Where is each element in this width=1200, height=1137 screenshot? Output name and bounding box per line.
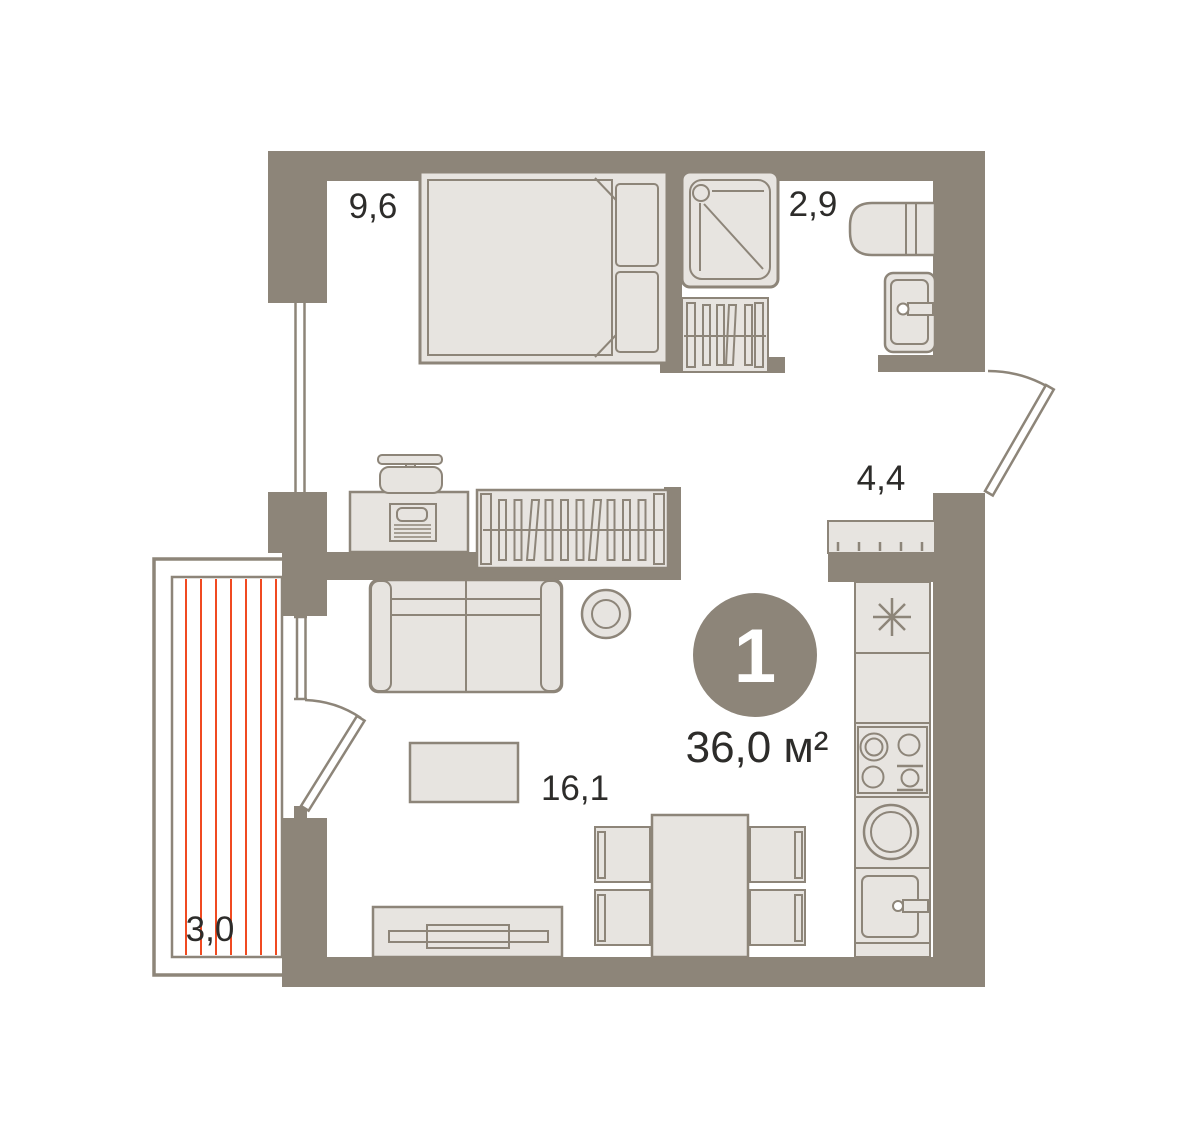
coffee-table <box>410 743 518 802</box>
kitchen-end-panel <box>855 943 930 957</box>
desk-chair-seat <box>380 467 442 493</box>
wall-left-middle <box>268 492 327 553</box>
balcony-area-label: 3,0 <box>186 910 235 949</box>
sink-faucet-bar <box>908 303 933 315</box>
hallway-area-label: 4,4 <box>857 459 906 498</box>
hallway-furniture <box>828 521 935 553</box>
shower <box>682 172 778 287</box>
tv-screen <box>389 931 548 942</box>
balcony-door-window <box>294 616 307 700</box>
wardrobe <box>477 490 668 568</box>
wall-right-upper <box>933 151 985 370</box>
balcony-door-swing-arc <box>305 700 361 718</box>
unit-badge: 1 36,0 м² <box>686 593 829 772</box>
dining-chair-top-left <box>595 827 650 882</box>
sofa-armrest-left <box>371 581 391 691</box>
living-room-area-label: 16,1 <box>541 769 609 808</box>
bathroom-area-label: 2,9 <box>789 185 838 224</box>
bed-mattress <box>428 180 612 355</box>
entrance-door <box>985 371 1054 496</box>
toilet <box>850 203 935 255</box>
side-table-outer <box>582 590 630 638</box>
kitchen <box>855 582 930 957</box>
bed-pillow-top <box>616 184 658 266</box>
wall-top-left-column <box>268 151 327 303</box>
wall-bottom <box>282 957 985 987</box>
sofa <box>370 580 562 692</box>
towel-dryer-rack <box>682 298 768 372</box>
dining-chair-bottom-left <box>595 890 650 945</box>
wall-kitchen-hallway <box>828 553 943 582</box>
balcony-door-leaf <box>301 716 365 811</box>
unit-total-area: 36,0 м² <box>686 723 829 772</box>
dining-table <box>652 815 748 957</box>
unit-rooms-count: 1 <box>734 614 776 699</box>
bedroom-furniture <box>350 172 668 568</box>
bed-pillow-bottom <box>616 272 658 352</box>
floor-plan-svg: 9,6 2,9 4,4 16,1 3,0 1 36,0 м² <box>0 0 1200 1137</box>
dining-set <box>595 815 805 957</box>
sink-faucet-knob <box>898 304 909 315</box>
bathroom-sink <box>885 273 935 352</box>
toilet-bowl <box>850 203 935 255</box>
balcony-door <box>301 700 365 811</box>
kitchen-sink-faucet-bar <box>903 900 928 912</box>
laptop-lid <box>397 508 427 521</box>
shower-tray <box>682 172 778 287</box>
entrance-door-swing-arc <box>988 371 1050 388</box>
tv-stand <box>373 907 562 957</box>
wall-left-above-balcony-door <box>283 578 327 616</box>
kitchen-sink-faucet-knob <box>893 901 903 911</box>
dining-chair-top-right <box>750 827 805 882</box>
desk-chair-back <box>378 455 442 464</box>
bedroom-area-label: 9,6 <box>349 187 398 226</box>
entrance-door-leaf <box>985 385 1054 496</box>
coat-rack <box>828 521 935 553</box>
bedroom-window <box>296 303 305 492</box>
sofa-armrest-right <box>541 581 561 691</box>
floor-plan: 9,6 2,9 4,4 16,1 3,0 1 36,0 м² <box>0 0 1200 1137</box>
dining-chair-bottom-right <box>750 890 805 945</box>
balcony-deck <box>172 577 282 957</box>
wall-bathroom-bottom-right <box>878 355 985 372</box>
kitchen-cabinet <box>855 653 930 723</box>
